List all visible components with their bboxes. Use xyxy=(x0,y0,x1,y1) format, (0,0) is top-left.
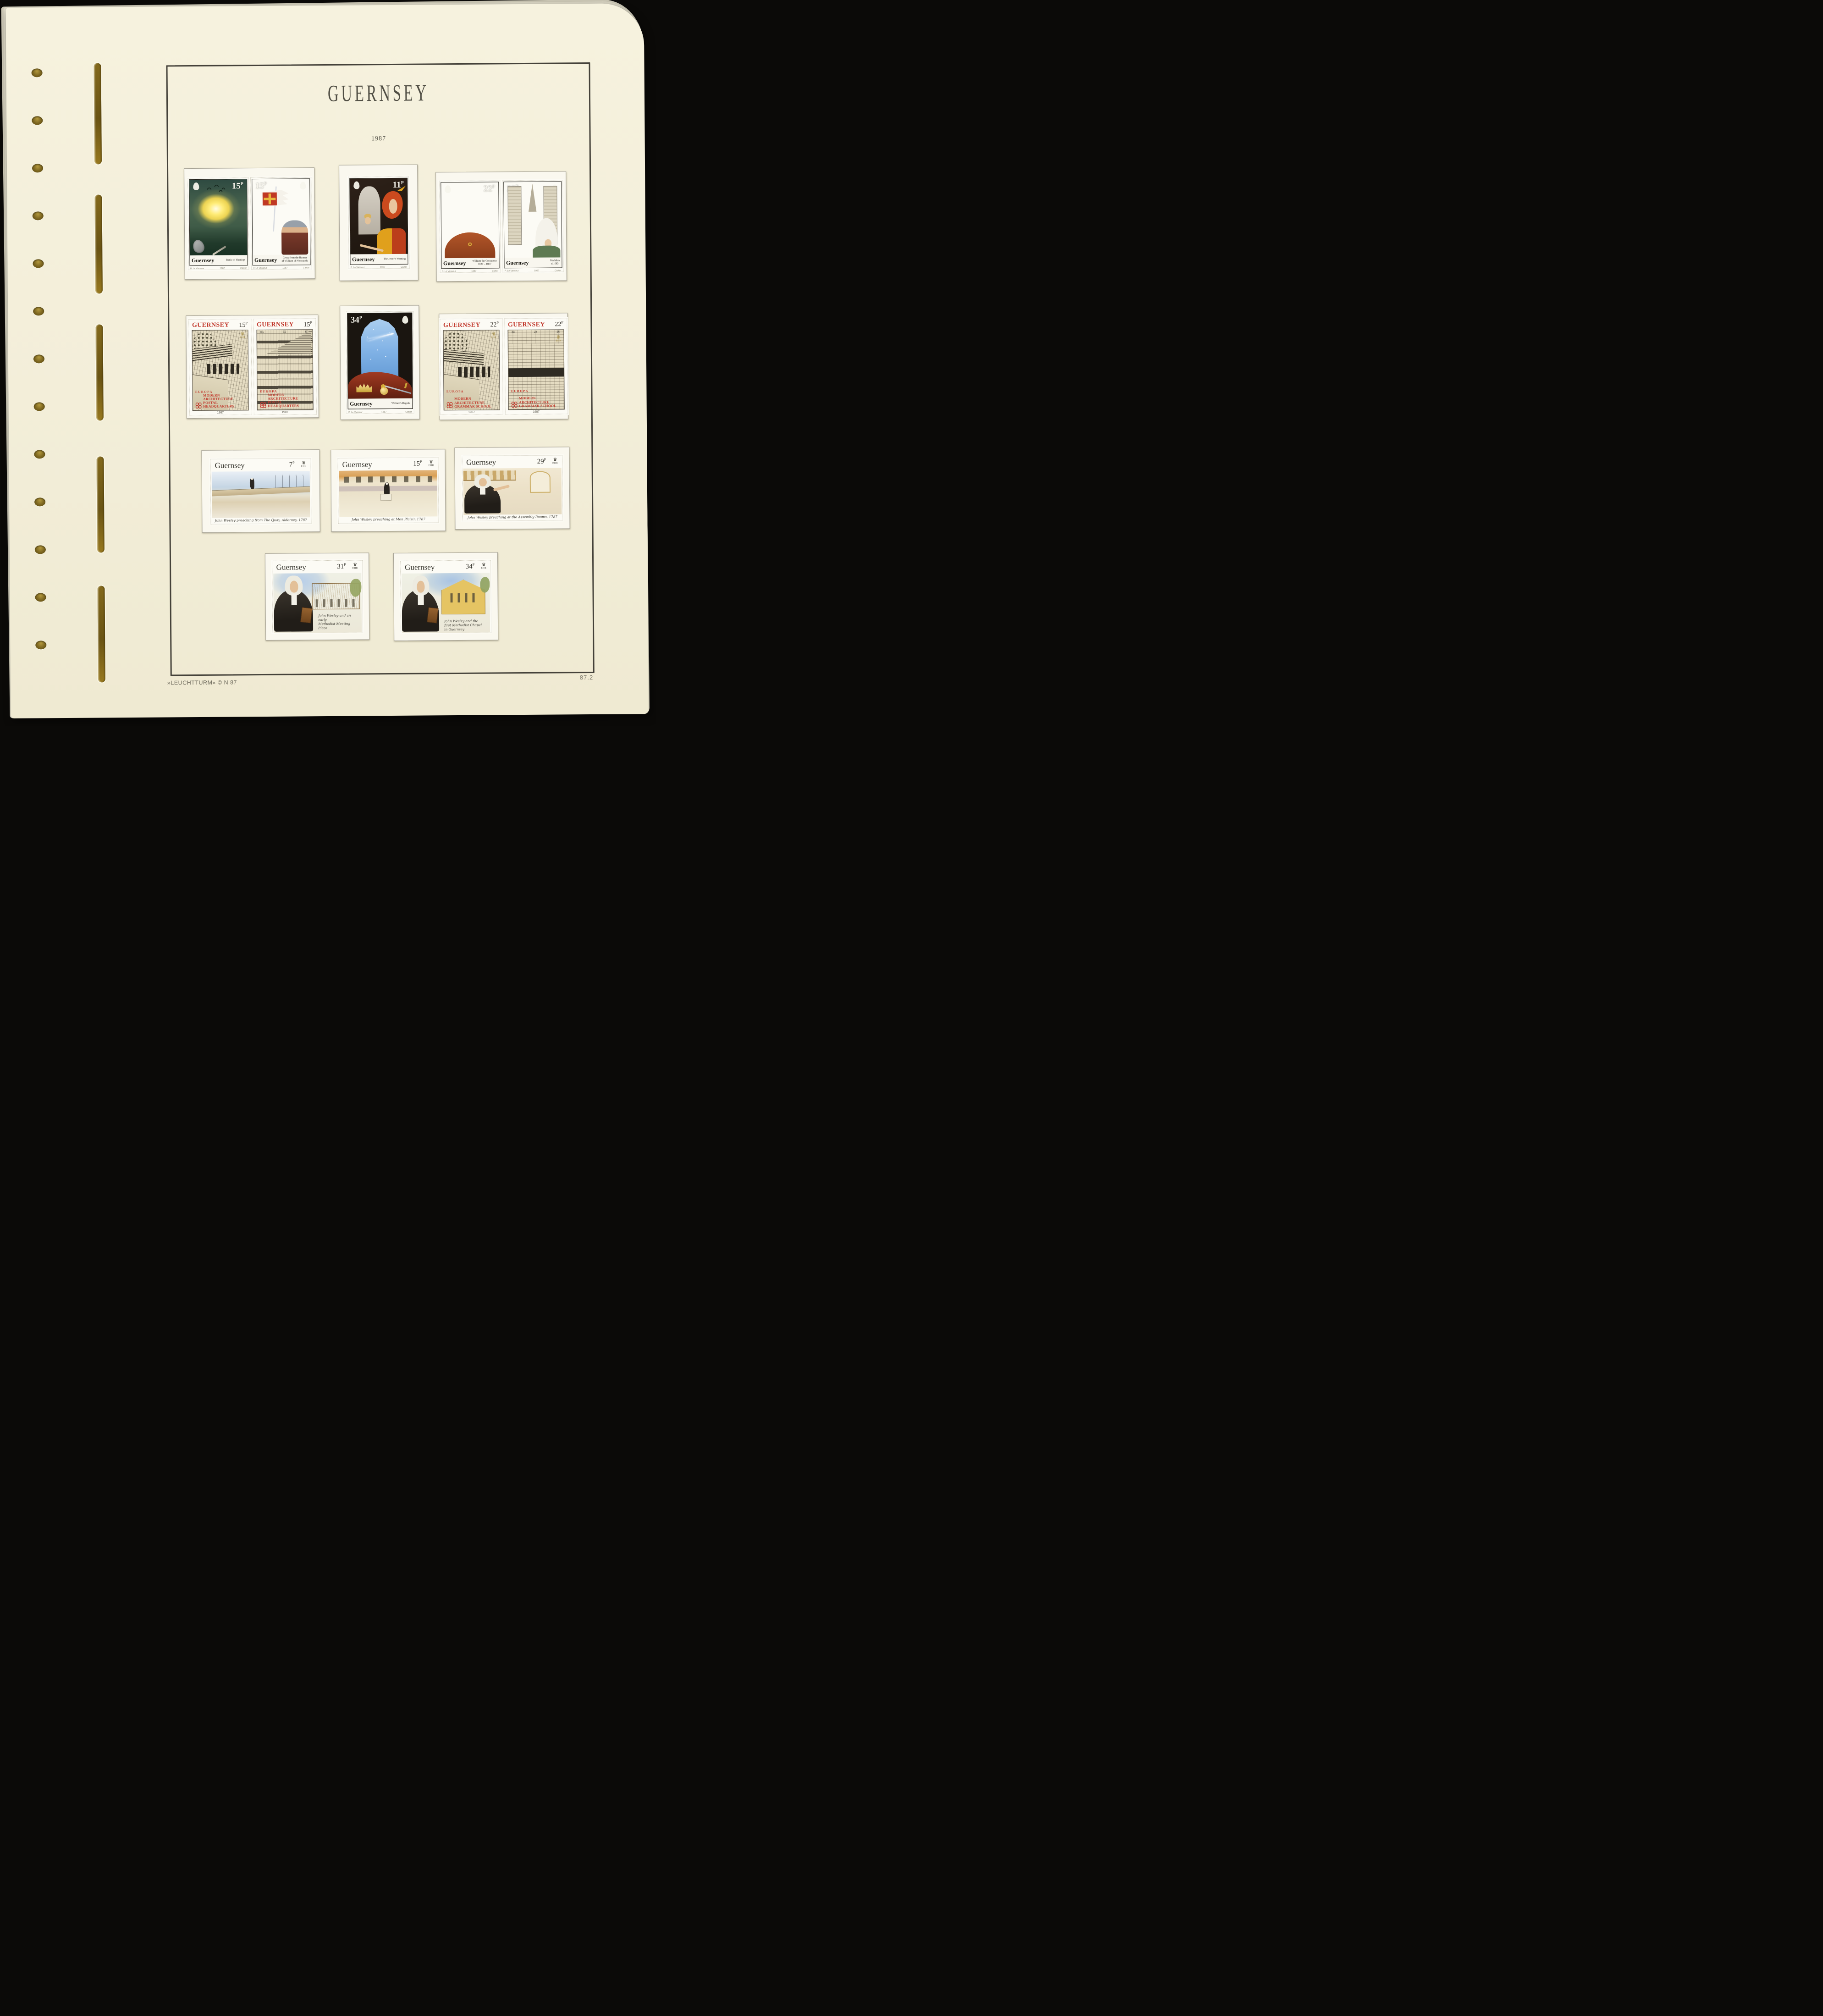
europa-caption: MODERN ARCHITECTUREPOSTAL HEADQUARTERS xyxy=(195,393,247,409)
imprint-line: P. Le Vasseur 1987 Cartor xyxy=(253,266,309,270)
stamp-design: 23 24 25 ♛EIIR EUROPA MODERN ARCHITECTUR… xyxy=(507,329,564,410)
crown-eiir-emblem-icon: ♛EIIR xyxy=(556,335,561,342)
country-name: GUERNSEY xyxy=(192,322,229,329)
printer-credit: Cartor xyxy=(303,266,309,269)
europa-label: EUROPA xyxy=(446,390,464,393)
cept-logo-icon xyxy=(195,402,202,409)
wesley-figure xyxy=(402,576,439,632)
stamp-design: 15P Guernsey Battle of Hastings xyxy=(189,179,248,266)
country-name: GUERNSEY xyxy=(443,322,480,329)
stamp-22p-europa-grammar-school-view: GUERNSEY 22P ♛EIIR EUROPA MODERN ARCHITE… xyxy=(439,317,504,416)
stamp-caption: The Jester's Warning xyxy=(384,257,406,260)
country-name: Guernsey xyxy=(350,401,372,406)
denomination: 31P xyxy=(337,563,346,570)
printer-credit: Cartor xyxy=(401,266,407,269)
stamp-design: 11P Guernsey The Jester's Warning xyxy=(349,178,408,265)
denomination-value: 22 xyxy=(555,321,561,328)
country-name: Guernsey xyxy=(276,563,306,571)
stamp-29p-wesley-assembly-rooms: Guernsey 29P ♛EIIR John W xyxy=(461,454,564,522)
binder-hole xyxy=(33,211,44,220)
binder-hole xyxy=(34,402,45,411)
binder-slot xyxy=(94,63,102,164)
binder-hole xyxy=(34,497,45,506)
preaching-bands-shape xyxy=(480,487,485,495)
crown-eiir-emblem-icon: ♛EIIR xyxy=(491,332,496,339)
issue-year: 1987 xyxy=(282,267,287,270)
europa-caption: MODERN ARCHITECTUREPOSTAL HEADQUARTERS xyxy=(259,393,311,408)
stamp-caption: Mathildad.1083 xyxy=(550,260,560,265)
stamp-caption-strip: Guernsey William the Conqueror1027 – 108… xyxy=(441,258,499,268)
stamp-mount: 34P Guernsey William's Regalia xyxy=(340,305,420,420)
jester-face-shape xyxy=(389,199,397,214)
wesley-figure xyxy=(274,575,313,632)
stamp-15p-europa-postal-headquarters-view: GUERNSEY 15P ♛EIIR EUROPA MODERN ARCHITE… xyxy=(187,318,253,416)
stamp-mount: GUERNSEY 15P ♛EIIR EUROPA MODERN ARCHITE… xyxy=(186,315,319,419)
denomination-unit: P xyxy=(241,182,243,187)
stamp-caption-strip: Guernsey Battle of Hastings xyxy=(190,255,247,265)
stamp-15p-battle-of-hastings: 15P Guernsey Battle of Hastings P. Le Va… xyxy=(187,177,250,271)
queen-cameo-icon xyxy=(402,316,408,324)
denomination: 22P xyxy=(555,320,563,328)
grid-reference-labels: 23 24 25 xyxy=(512,331,560,334)
designer-credit: P. Le Vasseur xyxy=(442,270,456,273)
binder-hole xyxy=(34,450,45,458)
denomination-unit: P xyxy=(473,563,475,567)
stamp-header: GUERNSEY 22P xyxy=(441,319,501,330)
stamp-caption: MODERN ARCHITECTUREPOSTAL HEADQUARTERS xyxy=(203,393,247,409)
window-row-shape xyxy=(458,367,490,377)
country-name: Guernsey xyxy=(466,458,496,466)
denomination-unit: P xyxy=(544,458,546,462)
face-shape xyxy=(290,581,298,593)
designer-credit: P. Le Vasseur xyxy=(348,411,362,414)
imprint-line: P. Le Vasseur 1987 Cartor xyxy=(505,269,561,272)
binder-hole xyxy=(35,593,46,602)
stamp-mount: Guernsey 31P ♛EIIR xyxy=(265,552,369,641)
stamp-design: John Wesley and the first Methodist Chap… xyxy=(402,573,490,633)
stamp-11p-jesters-warning: 11P Guernsey The Jester's Warning P. L xyxy=(347,176,410,270)
stamp-mount: Guernsey 34P ♛EIIR xyxy=(393,552,498,641)
binder-hole xyxy=(33,259,44,268)
printer-credit: Cartor xyxy=(555,269,561,272)
country-name: GUERNSEY xyxy=(508,321,545,328)
denomination-unit: P xyxy=(344,563,346,567)
stamp-caption: William's Regalia xyxy=(391,402,410,405)
binder-hole xyxy=(32,68,43,77)
stamp-22p-europa-grammar-school-elevation: GUERNSEY 22P 23 24 25 ♛EIIR EUROPA MODER… xyxy=(503,317,568,415)
stamp-design xyxy=(463,468,562,514)
denomination-unit: P xyxy=(420,460,422,464)
stamp-design: 15P Guernsey Cross from the Bannerof Wil… xyxy=(252,178,310,265)
stamp-design xyxy=(212,471,310,518)
stamp-caption: MODERN ARCHITECTUREGRAMMAR SCHOOL xyxy=(454,397,498,409)
europa-caption: MODERN ARCHITECTUREGRAMMAR SCHOOL xyxy=(446,397,498,409)
stamp-7p-wesley-quay-alderney: Guernsey 7P ♛EIIR John Wesley preaching … xyxy=(209,457,312,525)
face-shape xyxy=(479,478,487,486)
stamp-15p-banner-of-william: 15P Guernsey Cross from the Bannerof Wil… xyxy=(249,176,313,271)
issue-year: 1987 xyxy=(380,266,385,269)
photo-background: GUERNSEY 1987 15P Guernsey Battle of Has… xyxy=(0,0,656,726)
denomination-value: 22 xyxy=(484,184,492,193)
preaching-bands-shape xyxy=(291,594,297,605)
denomination-unit: P xyxy=(245,321,248,325)
stamp-design: 34P Guernsey William's Regalia xyxy=(347,313,413,409)
cathedral-spire-shape xyxy=(529,184,537,212)
denomination-unit: P xyxy=(310,320,312,325)
issue-year: 1987 xyxy=(381,411,386,414)
binder-slot xyxy=(94,194,103,293)
stamp-header: Guernsey 34P ♛EIIR xyxy=(402,561,490,574)
denomination: 29P xyxy=(537,458,546,465)
stamp-mount: Guernsey 29P ♛EIIR John W xyxy=(454,447,570,530)
country-name: Guernsey xyxy=(506,260,529,265)
green-dress-shape xyxy=(533,245,560,258)
imprint-line: P. Le Vasseur 1987 Cartor xyxy=(190,267,247,270)
book-shape xyxy=(427,607,438,623)
stamp-header: GUERNSEY 22P xyxy=(505,319,566,330)
stamp-mount: 15P Guernsey Battle of Hastings P. Le Va… xyxy=(184,167,315,280)
stamp-caption-strip: Guernsey William's Regalia xyxy=(348,398,412,409)
fallen-helmet-shape xyxy=(192,238,206,254)
issue-year: 1987 xyxy=(441,410,502,415)
stamp-caption: MODERN ARCHITECTUREPOSTAL HEADQUARTERS xyxy=(268,393,311,408)
stone-quay-shape xyxy=(212,486,310,496)
stamp-header: GUERNSEY 15P xyxy=(189,320,250,331)
stamp-header: GUERNSEY 15P xyxy=(254,319,315,330)
binder-slot xyxy=(97,585,105,682)
stamp-caption: John Wesley preaching from The Quay, Ald… xyxy=(212,517,310,524)
country-name: Guernsey xyxy=(342,460,372,468)
cept-logo-icon xyxy=(446,402,453,409)
queen-cameo-icon xyxy=(193,182,199,190)
denomination-value: 31 xyxy=(337,563,344,570)
pulpit-shape xyxy=(380,494,391,501)
stamp-design: ♛EIIR EUROPA MODERN ARCHITECTUREPOSTAL H… xyxy=(192,330,248,410)
stamp-15p-wesley-mon-plaisir: Guernsey 15P ♛EIIR John Wesley preaching… xyxy=(336,456,440,525)
imprint-line: P. Le Vasseur 1987 Cartor xyxy=(351,266,407,269)
stamp-mount: 11P Guernsey The Jester's Warning P. L xyxy=(339,165,419,281)
stamp-caption: John Wesley preaching at the Assembly Ro… xyxy=(463,514,562,521)
binder-hole xyxy=(35,641,46,649)
denomination-value: 34 xyxy=(351,315,359,325)
stamp-22p-mathilda: 22P Guernsey Mathildad.1083 P. Le Vasseu… xyxy=(501,179,564,273)
denomination: 15P xyxy=(303,321,312,328)
crown-eiir-emblem-icon: ♛EIIR xyxy=(552,458,558,465)
outstretched-arm-shape xyxy=(493,485,510,492)
sword-shape xyxy=(212,246,226,256)
stamp-header: Guernsey 7P ♛EIIR xyxy=(211,459,309,471)
house-windows-shape xyxy=(315,599,356,608)
stamp-mount: Guernsey 7P ♛EIIR John Wesley preaching … xyxy=(201,449,320,533)
crown-eiir-emblem-icon: ♛EIIR xyxy=(481,563,486,570)
stamp-header: Guernsey 15P ♛EIIR xyxy=(339,458,437,470)
crowd-figures xyxy=(212,501,310,518)
europa-caption: MODERN ARCHITECTUREGRAMMAR SCHOOL xyxy=(511,397,562,408)
stamp-mount: Guernsey 15P ♛EIIR John Wesley preaching… xyxy=(330,449,446,532)
book-shape xyxy=(300,607,312,623)
denomination: 15P xyxy=(413,460,422,468)
window-row-shape xyxy=(207,364,239,374)
stamp-15p-europa-postal-headquarters-elevation: GUERNSEY 15P E1 E2 E3 ♛EIIR EUROPA MODER… xyxy=(252,317,317,416)
denomination-value: 29 xyxy=(537,458,544,465)
designer-credit: P. Le Vasseur xyxy=(190,267,204,270)
portrait-head-shape xyxy=(461,202,477,223)
crowd-figures xyxy=(339,500,382,517)
tree-shape xyxy=(480,577,490,593)
stamp-header: Guernsey 31P ♛EIIR xyxy=(273,561,361,573)
birds-icon xyxy=(205,184,233,193)
crowd-figures xyxy=(440,611,489,618)
stamp-design: E1 E2 E3 ♛EIIR EUROPA MODERN ARCHITECTUR… xyxy=(256,329,313,410)
denomination-value: 11 xyxy=(393,180,401,190)
country-name: Guernsey xyxy=(443,260,466,266)
designer-credit: P. Le Vasseur xyxy=(505,270,518,272)
audience-figures xyxy=(507,494,562,513)
binder-hole xyxy=(32,164,43,172)
crown-eiir-emblem-icon: ♛EIIR xyxy=(301,461,307,468)
stamp-caption: John Wesley and an early Methodist Meeti… xyxy=(318,613,359,630)
denomination-value: 15 xyxy=(232,181,241,191)
issue-year: 1987 xyxy=(506,409,567,414)
stamp-caption: Cross from the Bannerof William of Norma… xyxy=(281,257,308,263)
issue-year: 1987 xyxy=(471,270,476,273)
country-name: Guernsey xyxy=(405,563,435,571)
orb-cross-shape xyxy=(382,384,384,387)
gold-orb-shape xyxy=(380,387,388,395)
stamp-caption-strip: Guernsey Mathildad.1083 xyxy=(504,257,562,268)
denomination-unit: P xyxy=(492,184,495,189)
stamp-design: 22P Guernsey William the Conqueror1027 –… xyxy=(441,182,499,269)
europa-label: EUROPA xyxy=(511,389,529,393)
country-name: Guernsey xyxy=(192,258,214,263)
binder-hole xyxy=(35,545,46,554)
denomination-unit: P xyxy=(561,320,563,324)
roof-hatching-shape xyxy=(443,349,483,365)
queen-cameo-icon xyxy=(445,185,451,193)
tree-shape xyxy=(350,579,361,597)
gilded-door-shape xyxy=(530,471,551,493)
printer-credit: Cartor xyxy=(492,270,498,272)
stamp-mount: GUERNSEY 22P ♛EIIR EUROPA MODERN ARCHITE… xyxy=(439,313,568,420)
stamp-caption-strip: Guernsey The Jester's Warning xyxy=(350,254,408,265)
cept-logo-icon xyxy=(259,401,266,408)
country-name: GUERNSEY xyxy=(257,322,294,329)
preaching-bands-shape xyxy=(418,594,424,605)
publisher-imprint: »LEUCHTTURM« © N 87 xyxy=(167,679,237,686)
album-page: GUERNSEY 1987 15P Guernsey Battle of Has… xyxy=(6,3,649,718)
stamp-design: ♛EIIR EUROPA MODERN ARCHITECTUREGRAMMAR … xyxy=(443,330,500,410)
binder-hole xyxy=(33,354,44,363)
stamp-caption: John Wesley and the first Methodist Chap… xyxy=(444,619,486,632)
designer-credit: P. Le Vasseur xyxy=(351,266,364,269)
binder-slot xyxy=(96,456,104,552)
denomination-value: 34 xyxy=(466,563,473,570)
stamp-22p-william-the-conqueror: 22P Guernsey William the Conqueror1027 –… xyxy=(438,179,501,274)
face-shape xyxy=(417,581,424,593)
denomination: 34P xyxy=(466,563,475,570)
page-number: 87.2 xyxy=(580,674,593,681)
denomination: 22P xyxy=(484,184,495,193)
denomination: 34P xyxy=(351,315,362,324)
denomination-value: 15 xyxy=(413,460,420,468)
binder-hole xyxy=(33,307,44,315)
issue-year: 1987 xyxy=(220,267,225,270)
denomination: 7P xyxy=(289,461,295,468)
designer-credit: P. Le Vasseur xyxy=(253,267,267,270)
stamp-design xyxy=(339,470,438,517)
stamp-caption: John Wesley preaching at Mon Plaisir, 17… xyxy=(339,516,437,523)
issue-year: 1987 xyxy=(190,410,251,415)
issue-year: 1987 xyxy=(254,410,315,415)
stamp-31p-wesley-meeting-place: Guernsey 31P ♛EIIR xyxy=(271,559,364,634)
chapel-windows-shape xyxy=(450,593,479,602)
round-shield-shape xyxy=(229,241,242,254)
stamp-design: John Wesley and an early Methodist Meeti… xyxy=(273,573,362,633)
denomination-value: 15 xyxy=(303,321,310,328)
imprint-line: P. Le Vasseur 1987 Cartor xyxy=(348,411,412,414)
stamp-mount: 22P Guernsey William the Conqueror1027 –… xyxy=(435,171,567,282)
stamp-caption: Battle of Hastings xyxy=(226,259,245,262)
norman-soldier-figure xyxy=(281,220,308,254)
denomination-unit: P xyxy=(292,460,295,464)
denomination: 22P xyxy=(490,321,499,328)
binder-slot xyxy=(95,324,103,420)
cathedral-tower-shape xyxy=(508,186,522,244)
window-row-shape xyxy=(344,476,432,483)
red-drapery-shape xyxy=(348,371,412,398)
wesley-figure xyxy=(464,475,501,514)
grid-reference-labels: E1 E2 E3 xyxy=(260,331,308,334)
country-name: Guernsey xyxy=(215,461,245,469)
binder-hole xyxy=(32,116,43,125)
denomination: 15P xyxy=(232,182,243,190)
stamp-caption: William the Conqueror1027 – 1087 xyxy=(472,260,497,266)
crown-eiir-emblem-icon: ♛EIIR xyxy=(240,332,245,339)
crowd-figures xyxy=(398,501,438,517)
denomination-value: 7 xyxy=(289,461,293,468)
printer-credit: Cartor xyxy=(240,267,247,270)
stamp-34p-williams-regalia: 34P Guernsey William's Regalia xyxy=(345,310,415,415)
page-title: GUERNSEY xyxy=(204,78,552,108)
denomination-unit: P xyxy=(496,320,499,325)
issue-year: 1987 xyxy=(534,270,539,272)
stamp-caption: MODERN ARCHITECTUREGRAMMAR SCHOOL xyxy=(519,397,562,408)
printer-credit: Cartor xyxy=(405,411,412,414)
denomination-value: 22 xyxy=(490,321,496,328)
dark-fascia-shape xyxy=(508,368,564,377)
denomination-unit: P xyxy=(401,180,404,185)
queen-cameo-icon xyxy=(353,182,359,189)
queen-cameo-icon xyxy=(300,182,306,189)
cept-logo-icon xyxy=(511,401,518,408)
stamp-34p-wesley-first-chapel: Guernsey 34P ♛EIIR xyxy=(399,559,492,634)
preacher-figure xyxy=(250,478,254,489)
country-name: Guernsey xyxy=(352,256,375,262)
denomination-value: 15 xyxy=(239,321,245,328)
crown-eiir-emblem-icon: ♛EIIR xyxy=(352,563,358,570)
denomination: 15P xyxy=(239,321,248,329)
stamp-design: 22P Guernsey Mathildad.1083 xyxy=(503,181,562,268)
crown-eiir-emblem-icon: ♛EIIR xyxy=(429,460,434,467)
imprint-line: P. Le Vasseur 1987 Cartor xyxy=(442,270,498,273)
stamp-header: Guernsey 29P ♛EIIR xyxy=(463,456,561,468)
doorway-arch-shape xyxy=(358,186,380,234)
country-name: Guernsey xyxy=(254,257,277,263)
stamp-caption-strip: Guernsey Cross from the Bannerof William… xyxy=(253,254,310,265)
